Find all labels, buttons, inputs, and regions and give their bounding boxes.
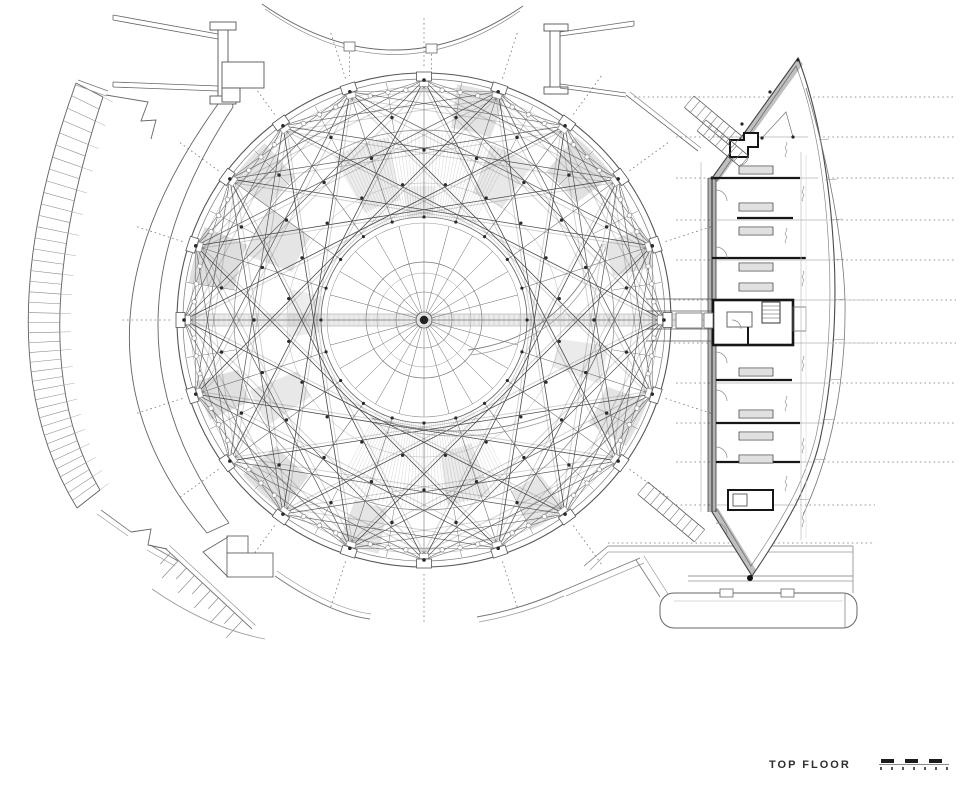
scale-bar-tick — [902, 767, 904, 770]
scale-bar-tick — [924, 767, 926, 770]
scale-bar-tick — [946, 767, 948, 770]
geodesic-dome — [176, 72, 712, 568]
scale-bar-tick — [880, 767, 882, 770]
floor-plan-drawing — [0, 0, 960, 788]
floor-label: TOP FLOOR — [769, 759, 851, 771]
scale-bar-segment — [905, 759, 918, 763]
scale-bar-tick — [913, 767, 915, 770]
scale-bar-segment — [929, 759, 942, 763]
blueprint-canvas: TOP FLOOR — [0, 0, 960, 788]
scale-bar-segment — [881, 759, 894, 763]
scale-bar — [879, 757, 951, 773]
scale-bar-baseline — [879, 764, 949, 765]
scale-bar-tick — [935, 767, 937, 770]
scale-bar-tick — [891, 767, 893, 770]
